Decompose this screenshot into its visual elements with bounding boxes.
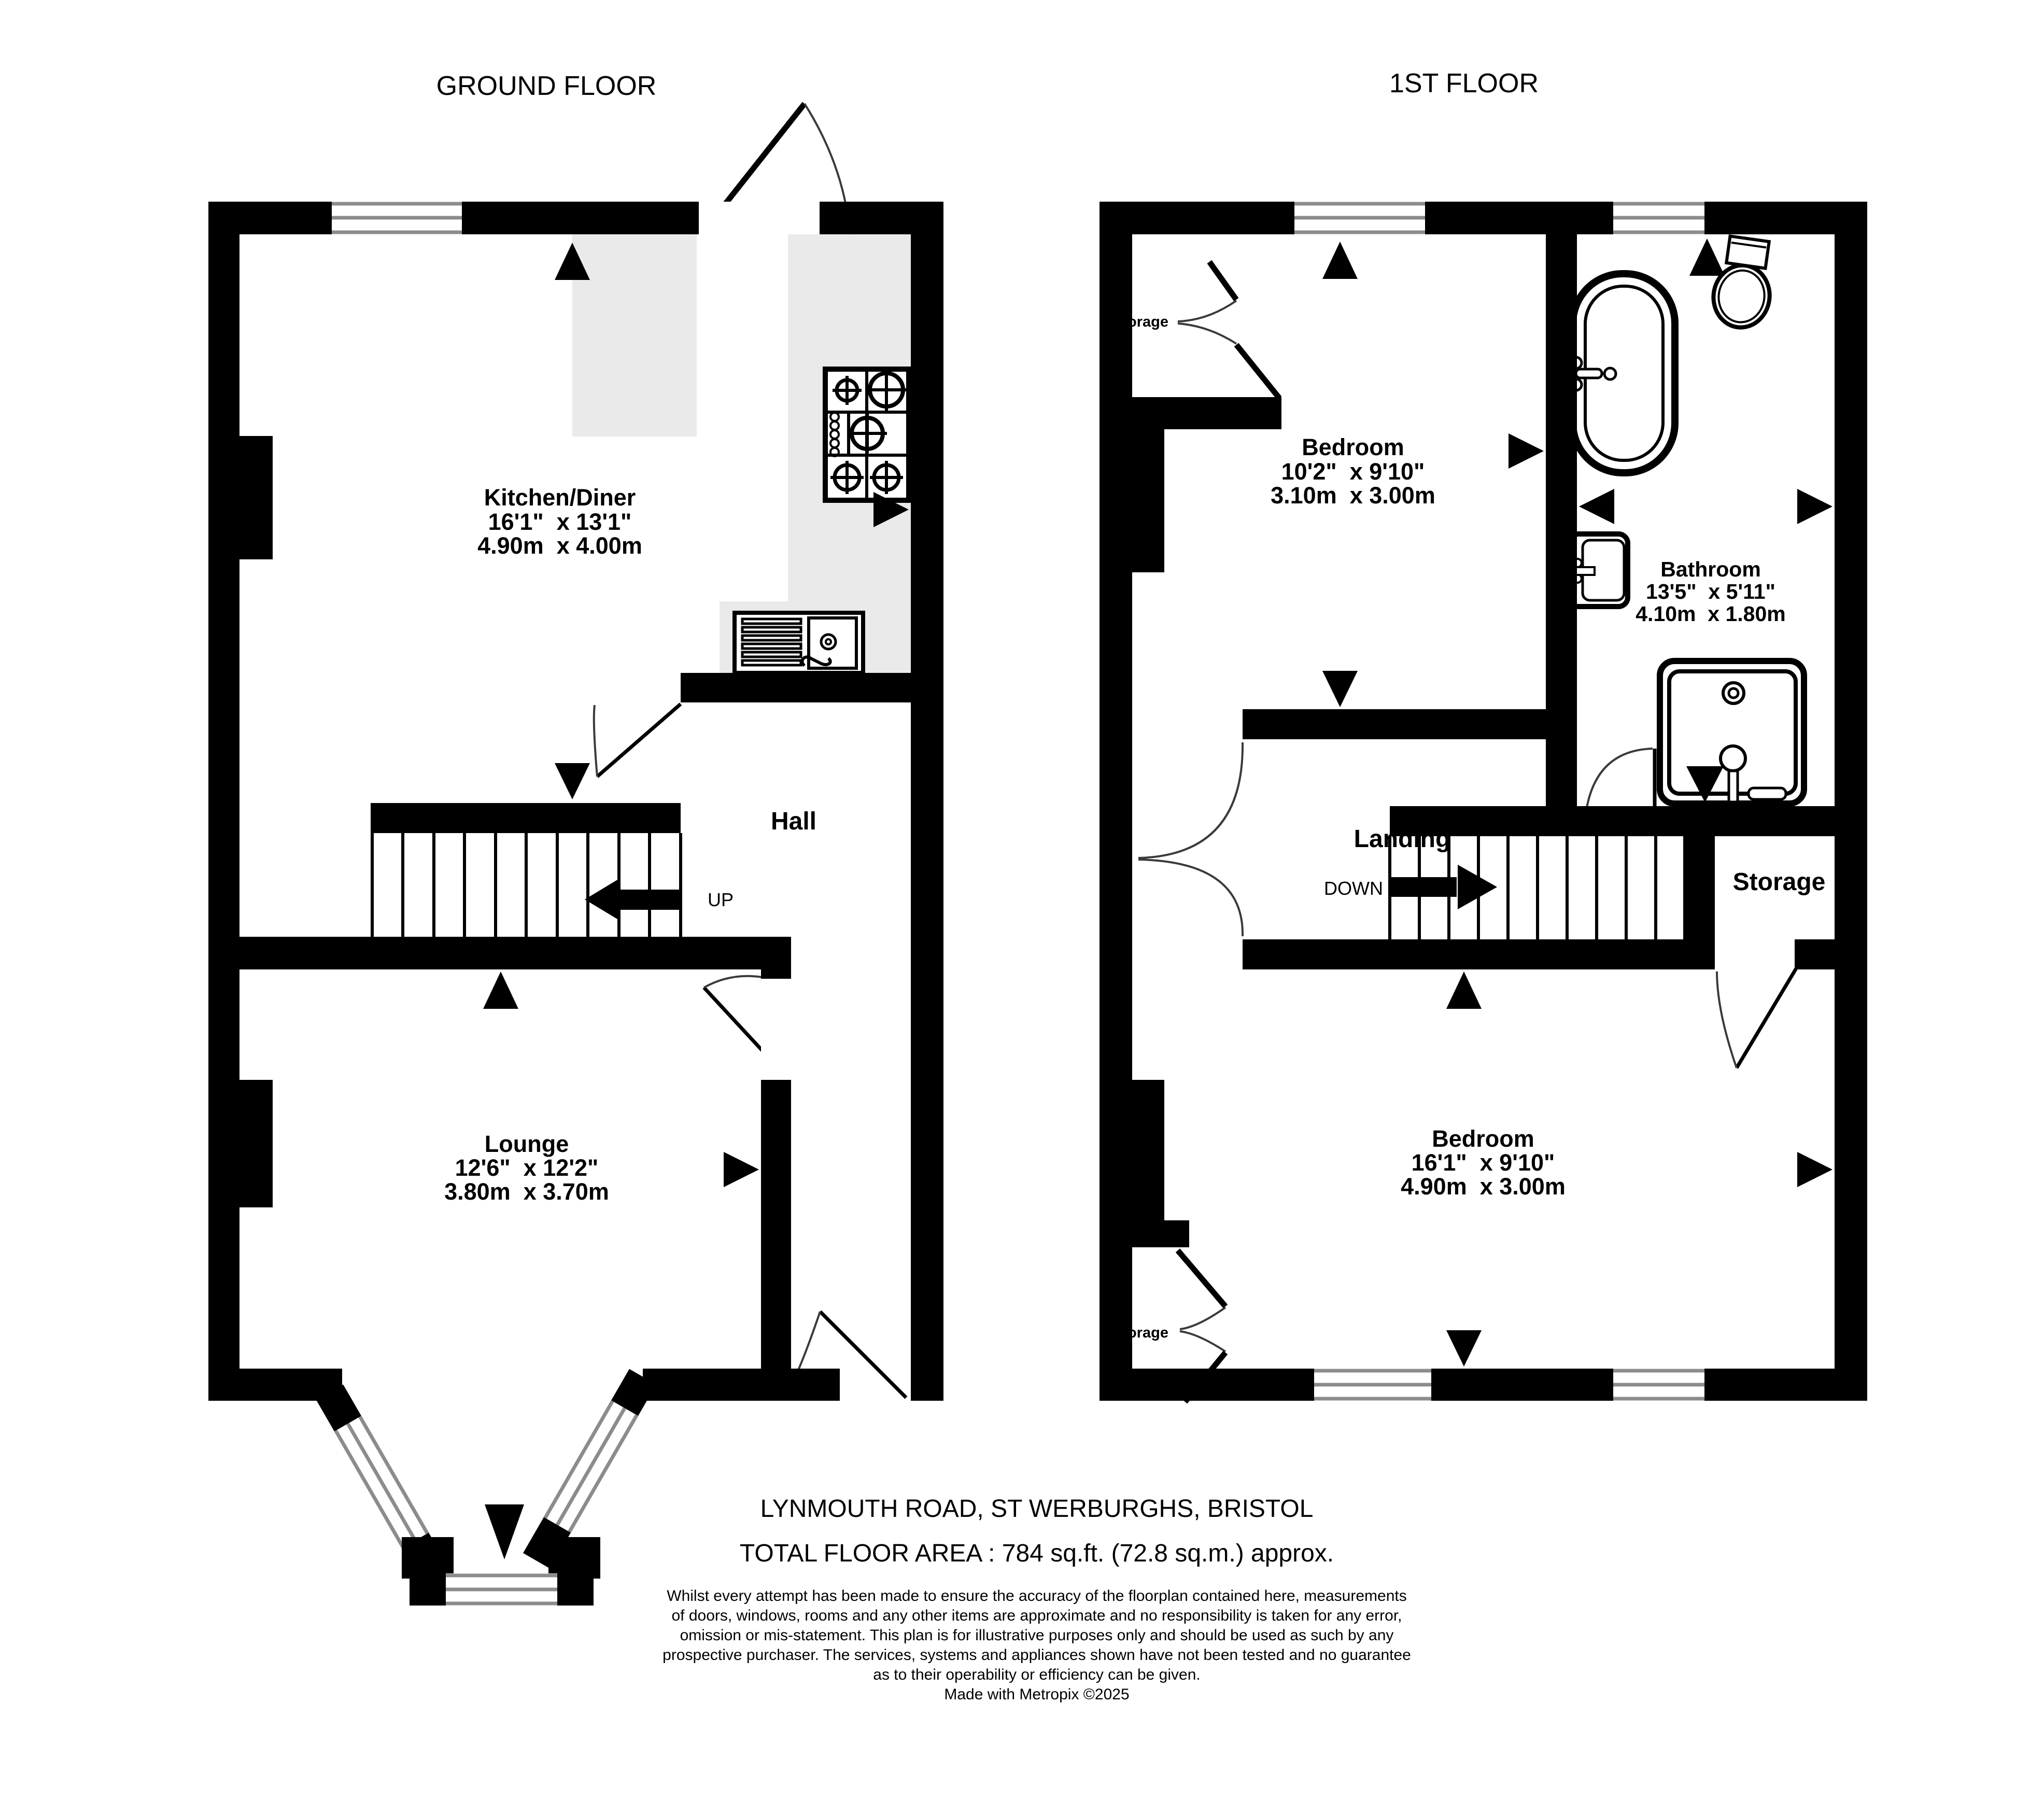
- closet-bottom-door-leaf: [1178, 1250, 1225, 1306]
- room-dims-imperial: 16'1" x 13'1": [488, 509, 632, 535]
- arrow-down-icon: [485, 1504, 524, 1559]
- ground-stairs: [372, 833, 681, 937]
- room-name: Bathroom: [1660, 557, 1761, 581]
- lounge-top-wall: [239, 937, 791, 969]
- arrow-down-icon: [1322, 671, 1358, 707]
- room-name: Bedroom: [1432, 1125, 1534, 1152]
- disclaimer-line: Whilst every attempt has been made to en…: [667, 1587, 1406, 1604]
- bedroom-back-door-arc: [1138, 860, 1243, 936]
- room-name: Kitchen/Diner: [484, 484, 636, 511]
- storage-room-label: Storage: [1733, 868, 1826, 896]
- basin-icon: [1569, 534, 1628, 607]
- ground-floor-plan: GROUND FLOOR Kitchen/Diner 16'1" x 13'1"…: [208, 71, 943, 1606]
- bath-icon: [1570, 274, 1675, 473]
- room-dims-metric: 3.10m x 3.00m: [1271, 482, 1435, 509]
- stairs-bottom-wall: [1243, 939, 1715, 969]
- closet-bottom-stub-wall: [1132, 1220, 1189, 1247]
- address: LYNMOUTH ROAD, ST WERBURGHS, BRISTOL: [760, 1495, 1314, 1523]
- arrow-right-icon: [1797, 489, 1832, 524]
- arrow-up-icon: [1689, 238, 1725, 276]
- room-dims-imperial: 13'5" x 5'11": [1646, 580, 1775, 603]
- first-floor-plan: Storage Storage Storage: [1099, 68, 1867, 1402]
- arrow-down-icon: [555, 763, 590, 799]
- stairs-storage-wall: [1685, 806, 1715, 939]
- arrow-left-icon: [1579, 489, 1614, 524]
- closet-top-door-leaf: [1236, 345, 1279, 398]
- disclaimer-line: prospective purchaser. The services, sys…: [662, 1646, 1411, 1664]
- room-dims-imperial: 16'1" x 9'10": [1412, 1149, 1555, 1176]
- room-name: Bedroom: [1302, 434, 1404, 460]
- toilet-icon: [1710, 235, 1778, 331]
- room-dims-metric: 4.90m x 3.00m: [1401, 1173, 1566, 1200]
- disclaimer-line: omission or mis-statement. This plan is …: [680, 1627, 1394, 1644]
- down-stairs-arrow: [1391, 865, 1497, 909]
- closet-top-door-leaf: [1209, 262, 1236, 300]
- kitchen-hall-door-arc: [594, 705, 597, 777]
- arrow-right-icon: [724, 1152, 759, 1187]
- counter-island: [572, 234, 697, 437]
- kitchen-hall-door-leaf: [597, 704, 681, 777]
- shower-icon: [1660, 661, 1804, 804]
- room-dims-metric: 4.10m x 1.80m: [1636, 602, 1785, 626]
- up-stairs-arrow: [585, 878, 682, 921]
- room-dims-imperial: 10'2" x 9'10": [1281, 458, 1425, 485]
- footer: LYNMOUTH ROAD, ST WERBURGHS, BRISTOL TOT…: [662, 1495, 1411, 1703]
- arrow-up-icon: [483, 972, 518, 1009]
- kitchen-hall-wall: [681, 673, 911, 702]
- metropix-credit: Made with Metropix ©2025: [944, 1686, 1129, 1703]
- kitchen-label: Kitchen/Diner 16'1" x 13'1" 4.90m x 4.00…: [477, 484, 642, 559]
- arrow-right-icon: [1797, 1152, 1832, 1187]
- lounge-door-opening: [761, 979, 791, 1080]
- arrow-down-icon: [1446, 1330, 1482, 1367]
- disclaimer-line: as to their operability or efficiency ca…: [873, 1666, 1200, 1683]
- chimney-breast: [239, 1080, 273, 1207]
- chimney-breast: [1132, 429, 1164, 572]
- bedroom-back-label: Bedroom 16'1" x 9'10" 4.90m x 3.00m: [1401, 1125, 1566, 1200]
- floorplan-page: GROUND FLOOR Kitchen/Diner 16'1" x 13'1"…: [0, 0, 2044, 1802]
- closet-top-stub-wall: [1132, 397, 1281, 429]
- up-label: UP: [708, 889, 734, 910]
- floorplan-drawing: GROUND FLOOR Kitchen/Diner 16'1" x 13'1"…: [0, 0, 2044, 1802]
- chimney-breast: [239, 436, 273, 559]
- arrow-right-icon: [1509, 433, 1544, 469]
- stairs-top-wall: [371, 803, 681, 833]
- hob-icon: [825, 369, 909, 500]
- room-dims-imperial: 12'6" x 12'2": [455, 1155, 599, 1181]
- back-door-opening: [699, 202, 820, 234]
- kitchen-window: [332, 202, 462, 234]
- room-name: Lounge: [485, 1131, 569, 1157]
- arrow-up-icon: [1322, 242, 1358, 279]
- first-floor-title: 1ST FLOOR: [1389, 68, 1539, 98]
- bedroom-front-wall: [1243, 709, 1546, 739]
- bay-window: [316, 1369, 656, 1606]
- room-dims-metric: 3.80m x 3.70m: [444, 1178, 609, 1205]
- room-dims-metric: 4.90m x 4.00m: [477, 532, 642, 559]
- bathroom-label: Bathroom 13'5" x 5'11" 4.10m x 1.80m: [1636, 557, 1785, 626]
- ground-floor-title: GROUND FLOOR: [436, 71, 657, 101]
- bed-bath-wall: [1546, 234, 1577, 836]
- hall-label: Hall: [771, 808, 816, 835]
- total-floor-area: TOTAL FLOOR AREA : 784 sq.ft. (72.8 sq.m…: [740, 1540, 1334, 1567]
- down-label: DOWN: [1324, 878, 1383, 899]
- bedroom-front-door-arc: [1138, 742, 1243, 858]
- sink-icon: [735, 613, 863, 673]
- storage-door-arc: [1717, 972, 1737, 1068]
- disclaimer: Whilst every attempt has been made to en…: [662, 1587, 1411, 1683]
- bedroom-front-label: Bedroom 10'2" x 9'10" 3.10m x 3.00m: [1271, 434, 1435, 509]
- disclaimer-line: of doors, windows, rooms and any other i…: [671, 1607, 1402, 1624]
- landing-label: Landing: [1354, 825, 1451, 853]
- storage-door-leaf: [1737, 968, 1796, 1068]
- chimney-breast: [1132, 1080, 1164, 1220]
- arrow-up-icon: [1446, 972, 1482, 1009]
- lounge-label: Lounge 12'6" x 12'2" 3.80m x 3.70m: [444, 1131, 609, 1205]
